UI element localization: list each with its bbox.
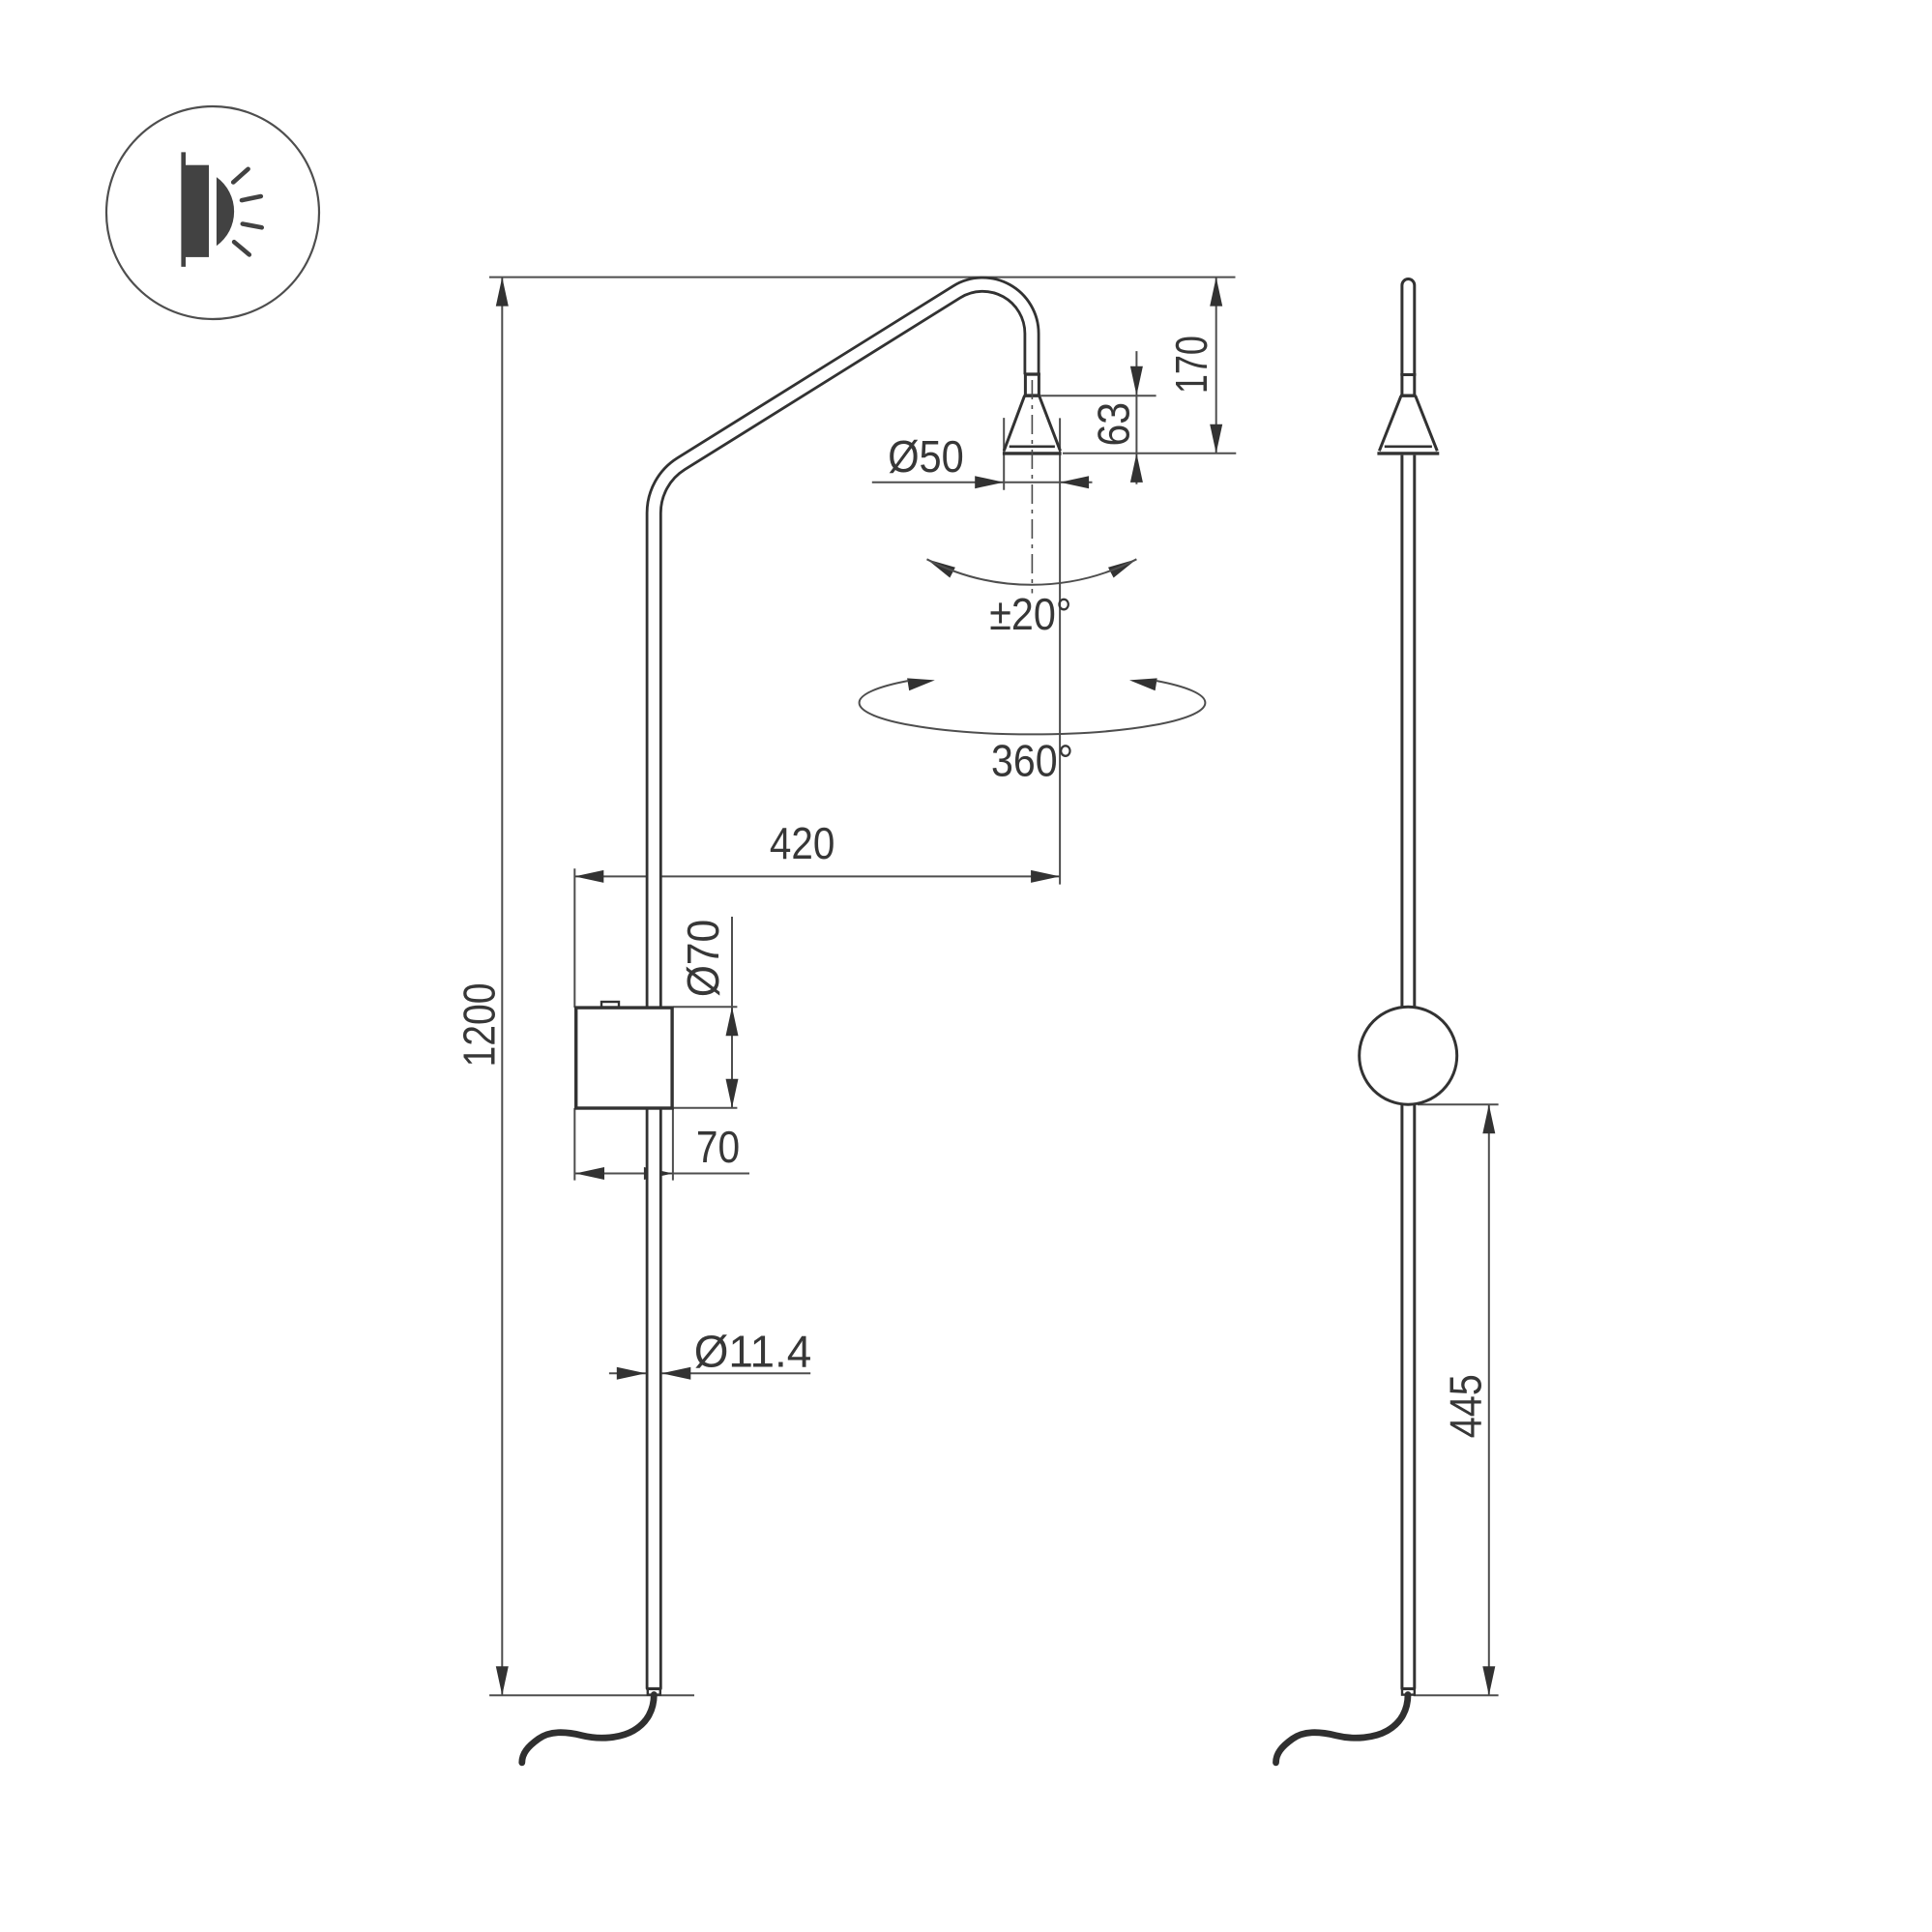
- svg-text:420: 420: [770, 818, 834, 868]
- svg-text:445: 445: [1441, 1374, 1491, 1438]
- svg-text:1200: 1200: [454, 983, 505, 1068]
- svg-text:±20°: ±20°: [989, 589, 1071, 639]
- svg-text:Ø70: Ø70: [678, 920, 728, 997]
- svg-text:Ø11.4: Ø11.4: [694, 1327, 812, 1377]
- svg-text:63: 63: [1089, 402, 1139, 447]
- svg-text:Ø50: Ø50: [888, 431, 964, 482]
- svg-text:170: 170: [1166, 336, 1216, 394]
- svg-text:360°: 360°: [991, 735, 1073, 785]
- svg-text:70: 70: [696, 1122, 740, 1172]
